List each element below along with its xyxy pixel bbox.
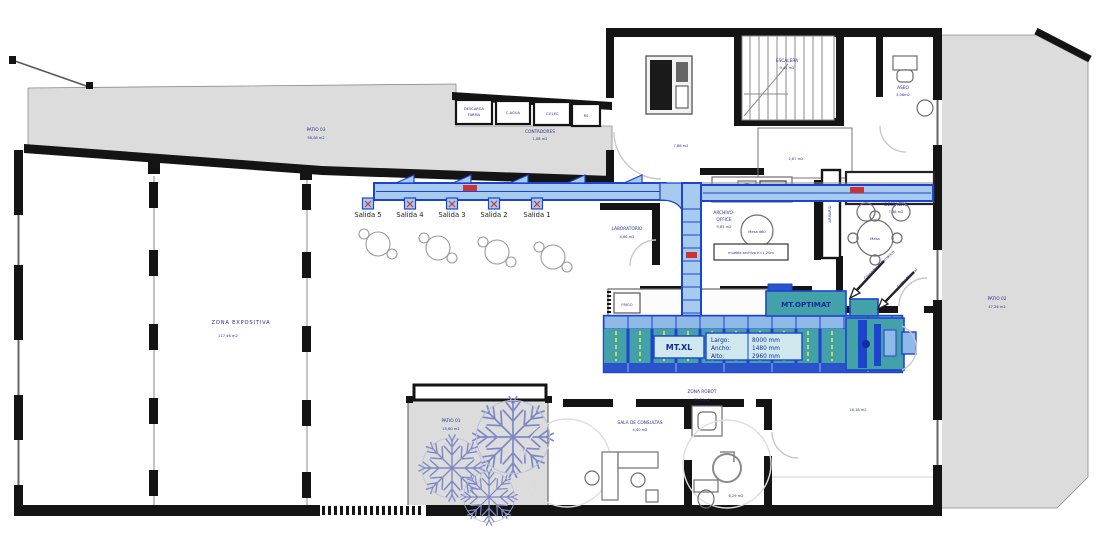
salida-2-label: Salida 2	[480, 211, 507, 219]
zona-robot-label: ZONA ROBOT	[687, 389, 716, 395]
washbasin-icon	[917, 100, 933, 116]
celec-label: C.ELEC	[546, 112, 559, 116]
rs-label: RS	[584, 114, 589, 118]
archivo-label-1: ARCHIVO-	[713, 210, 735, 216]
seating-tables	[359, 229, 572, 272]
dim-ancho-val: 1480 mm	[752, 346, 780, 352]
zona-expositiva-area: 117,46 m2	[218, 334, 238, 338]
stair-treads	[742, 36, 834, 120]
escalera-area: 9,41 m2	[780, 66, 795, 70]
robot-unit	[846, 318, 904, 370]
sala-consultas-area: 4,40 m2	[633, 428, 648, 432]
patio-01-area	[408, 400, 548, 510]
patio-02-area	[941, 35, 1088, 508]
sala-consultas-label: SALA DE CONSULTAS	[617, 420, 662, 426]
dim-ancho-key: Ancho:	[711, 346, 731, 352]
patio02-area-label: 47,26 m2	[988, 305, 1005, 309]
salida-3-label: Salida 3	[438, 211, 465, 219]
side-table	[646, 490, 658, 502]
chair-icon	[631, 473, 645, 487]
patio01-area: 15,60 m2	[442, 427, 459, 431]
aseo-label: ASEO	[897, 85, 909, 91]
archivo-label-2: OFFICE	[716, 217, 732, 223]
archivo-area: 9,85 m2	[717, 225, 732, 229]
column-marker	[686, 252, 697, 258]
column-strips	[149, 176, 311, 505]
exit-marker	[405, 198, 416, 209]
salida-1-label: Salida 1	[523, 211, 550, 219]
door-arc	[772, 432, 798, 458]
mt-xl-label: MT.XL	[666, 343, 693, 352]
room-descarga	[456, 100, 492, 124]
area-1618: 16,18 m2	[849, 408, 866, 412]
wheelchair-icon	[713, 454, 741, 482]
door-arc	[880, 126, 906, 152]
mt-optimat-label: MT.OPTIMAT	[781, 300, 831, 309]
dim-largo-key: Largo:	[711, 338, 729, 344]
corridor-area: 7,88 m2	[674, 144, 689, 148]
exit-marker	[532, 198, 543, 209]
planter	[414, 385, 546, 400]
chair-icon	[585, 471, 599, 485]
despacho-area: 7,38 m2	[889, 210, 904, 214]
salida-4-label: Salida 4	[396, 211, 423, 219]
floor-plan: ESCALERA 9,41 m2 ASEO 3,08m2 7,88 m2 2,8…	[0, 0, 1102, 543]
zona-expositiva-label: ZONA EXPOSITIVA	[211, 320, 270, 326]
elevator-car	[650, 60, 672, 110]
patio03-area-label: 98,08 m2	[307, 136, 324, 140]
site-boundary-line	[12, 60, 92, 88]
descarga-label-2: FARMA	[468, 113, 481, 117]
mueble-label: mueble archivo h=1,20m	[728, 251, 774, 255]
entrance-door-arc	[614, 132, 661, 179]
machine-outfeed	[902, 332, 916, 354]
window-gaps-left	[14, 215, 23, 485]
arrow-auto-label: Cargador Automático	[862, 249, 896, 281]
cagua-label: C.AGUA	[506, 111, 520, 115]
toilet-bowl	[897, 70, 913, 82]
bathroom-area: 6,29 m2	[729, 494, 744, 498]
boundary-tick	[9, 56, 16, 64]
boundary-tick	[86, 82, 93, 89]
dim-largo-val: 8000 mm	[752, 338, 780, 344]
contadores-label: CONTADORES	[525, 129, 555, 135]
zona-robot-area: 35,81m2	[694, 398, 710, 402]
exit-marker	[489, 198, 500, 209]
showroom: ZONA EXPOSITIVA 117,46 m2	[211, 229, 572, 338]
elevator-counterweight	[676, 62, 688, 82]
mesa-label: Mesa	[870, 237, 879, 241]
mesa-d80-label: Mesa d80	[748, 230, 766, 234]
patio03-label: PATIO 03	[306, 127, 325, 133]
laboratorio-area: 4,86 m2	[620, 235, 635, 239]
beam-marker	[463, 185, 477, 191]
exit-marker	[447, 198, 458, 209]
patio02-label: PATIO 02	[987, 296, 1006, 302]
descarga-label-1: DESCARGA	[464, 107, 485, 111]
floor-plan-drawing: ESCALERA 9,41 m2 ASEO 3,08m2 7,88 m2 2,8…	[0, 0, 1102, 543]
exit-marker	[363, 198, 374, 209]
armario-label: ARMARIO	[828, 205, 832, 222]
aseo-area: 3,08m2	[896, 93, 910, 97]
consult-desk	[602, 452, 618, 500]
frigo-label-2: FRIGO	[621, 303, 632, 307]
small-room-area: 2,87 m2	[789, 157, 804, 161]
loader-block	[850, 299, 878, 316]
consult-desk-return	[618, 452, 658, 468]
dim-alto-key: Alto:	[711, 354, 724, 360]
turning-radius	[683, 420, 771, 508]
escalera-label: ESCALERA	[776, 58, 798, 64]
salida-5-label: Salida 5	[354, 211, 381, 219]
despacho-label: DESPACHO	[884, 202, 908, 208]
beam-marker	[850, 187, 864, 193]
toilet-cistern	[893, 56, 917, 70]
patio01-label: PATIO 01	[441, 418, 460, 424]
contadores-area: 1,08 m2	[533, 137, 548, 141]
shaft-detail	[676, 86, 688, 108]
dim-alto-val: 2960 mm	[752, 354, 780, 360]
laboratorio-label: LABORATORIO	[612, 226, 643, 232]
